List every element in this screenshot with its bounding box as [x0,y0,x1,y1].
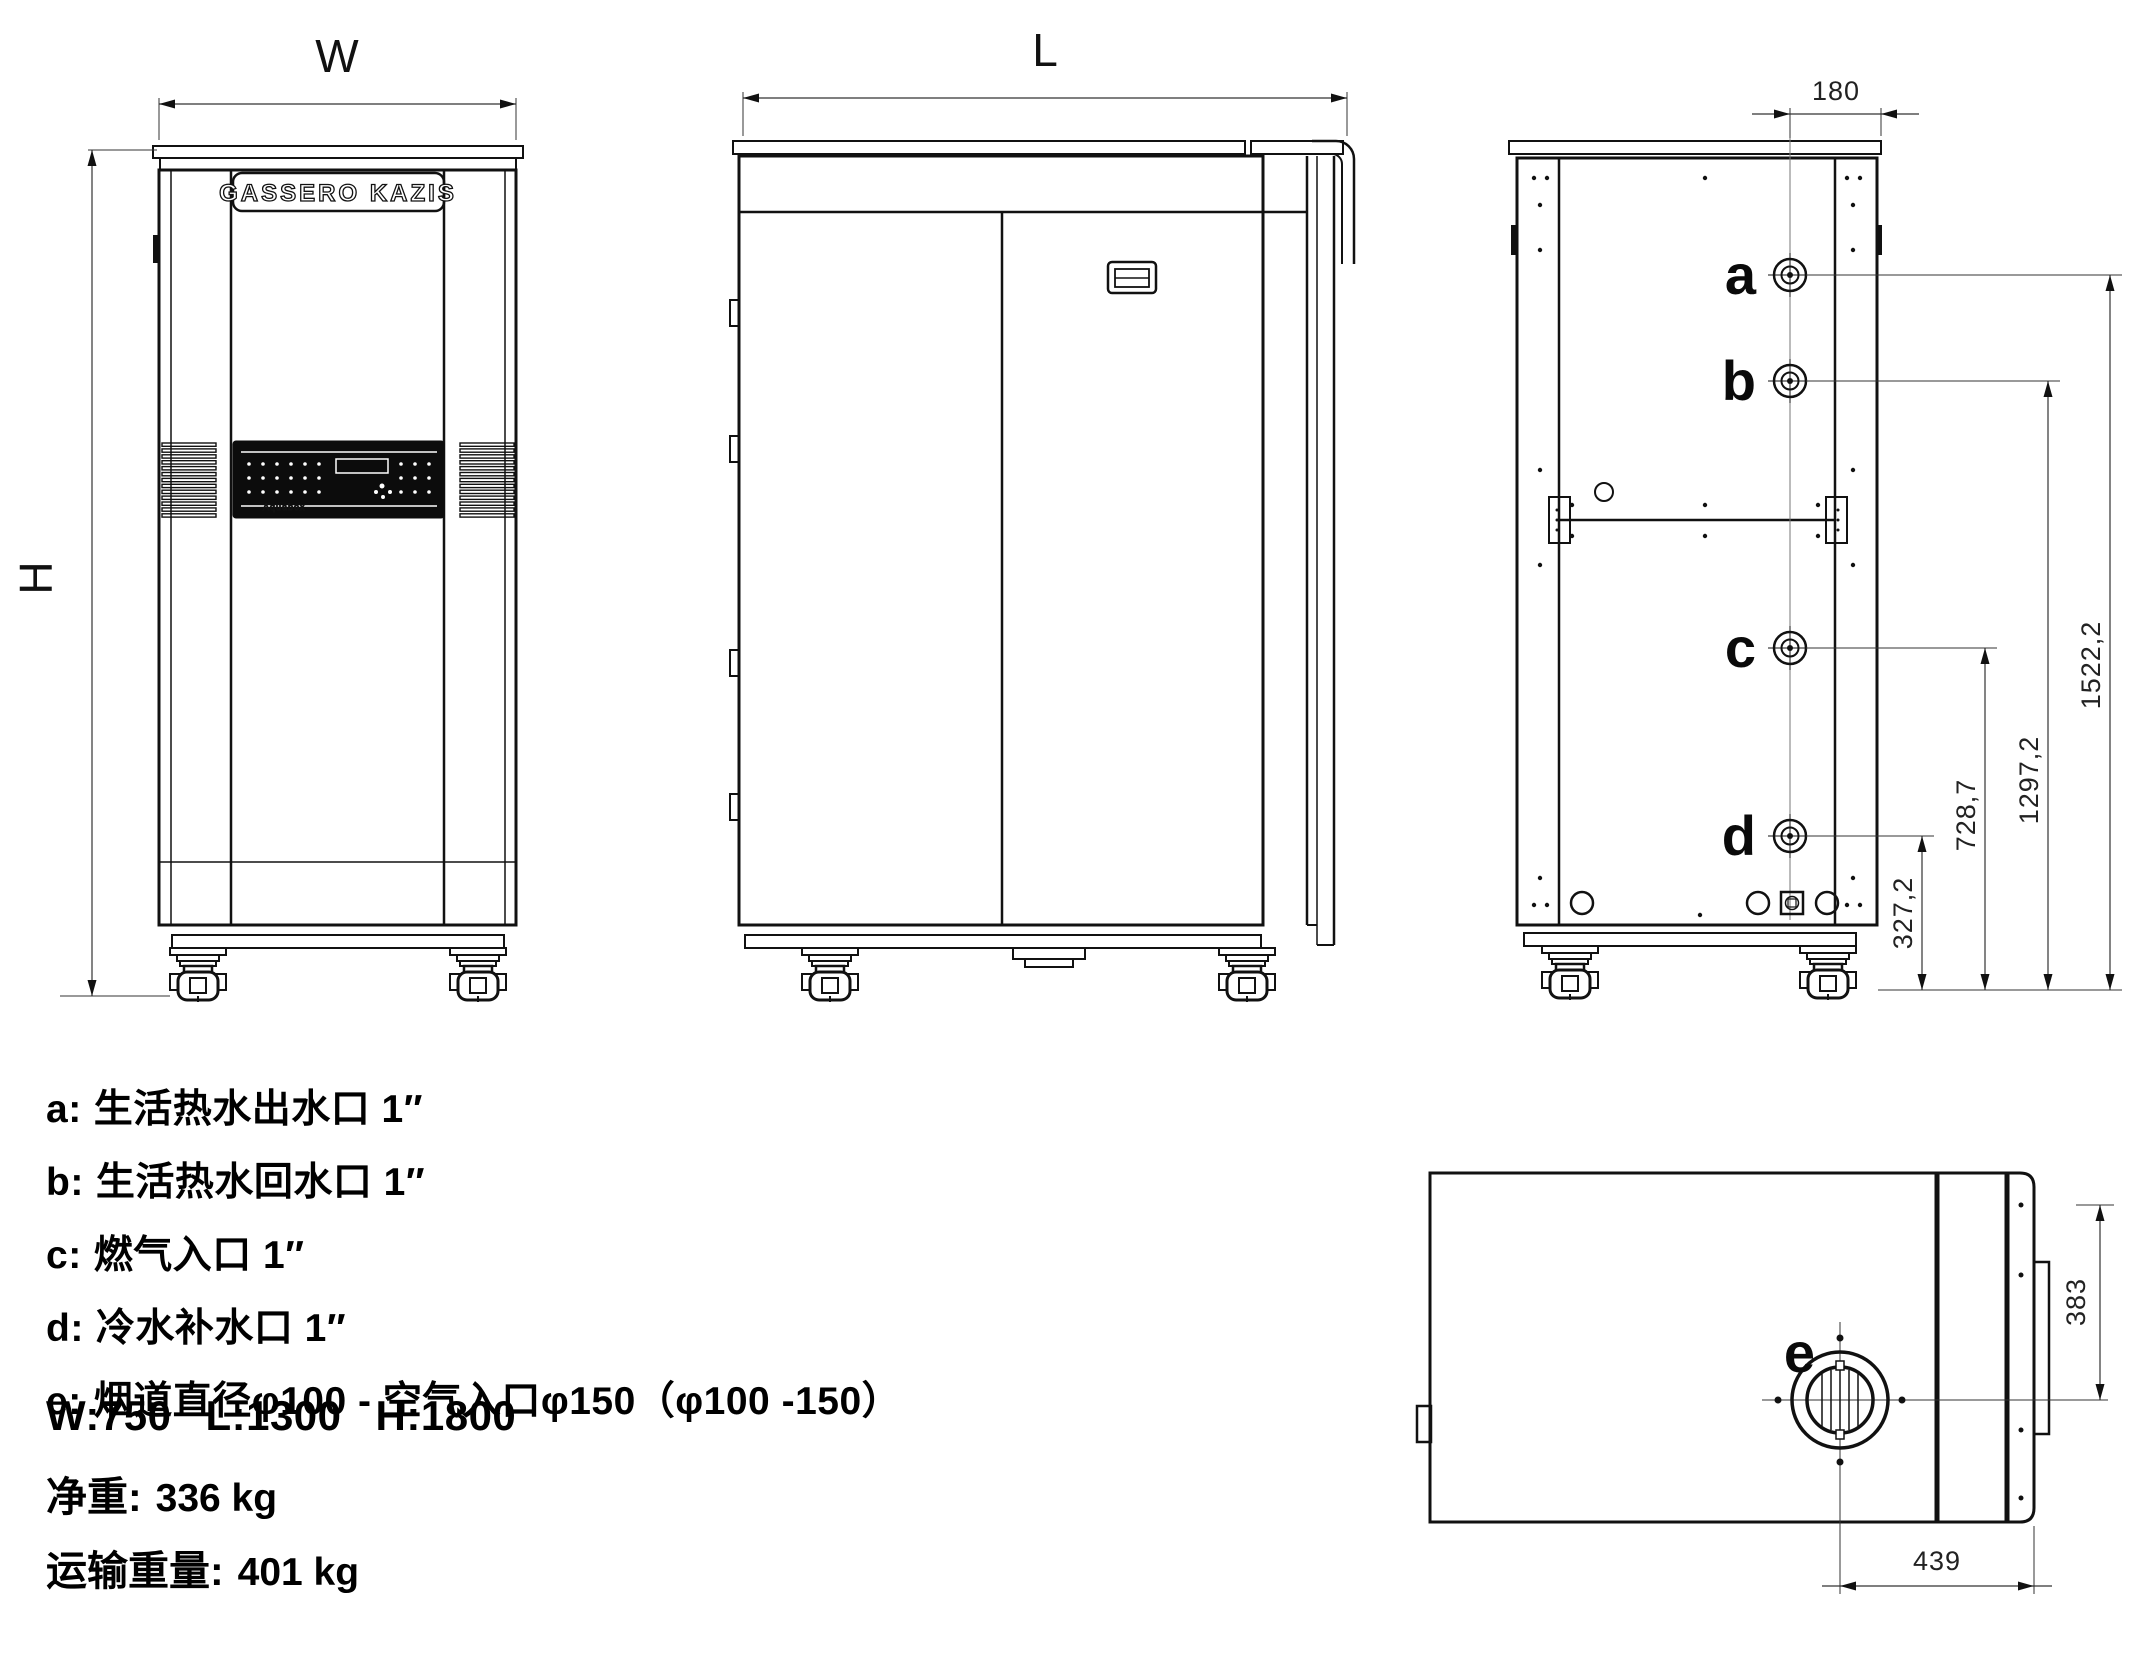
port-e-label: e [1784,1321,1815,1384]
control-panel: Aquabox [233,441,444,518]
vent-grille-left [162,443,216,517]
door-handle [1108,262,1156,293]
width-dim-label: W [315,30,359,82]
legend-text: 生活热水回水口 1″ [96,1161,425,1204]
legend-item-a: a:生活热水出水口 1″ [46,1078,901,1134]
side-view [730,141,1354,1002]
brand-text: GASSERO KAZIS [219,180,457,207]
legend-key: c: [46,1234,82,1277]
shipping-weight-label: 运输重量: [46,1548,224,1594]
panel-hole [1595,483,1613,501]
base-plate [1524,933,1856,946]
overall-dimensions: W:750L:1300H:1800 [46,1392,550,1440]
caster-wheel [170,948,226,1002]
vent-grille-right [460,443,514,517]
front-view: GASSERO KAZIS Aquabox [153,146,523,1002]
legend-item-d: d:冷水补水口 1″ [46,1297,901,1353]
caster-wheel [1800,946,1856,1000]
bottom-fittings [1571,892,1838,914]
base-bracket-step [1025,959,1073,967]
legend-key: d: [46,1307,84,1350]
legend-key: b: [46,1161,84,1204]
base-bracket [1013,948,1085,959]
net-weight-line: 净重:336 kg [46,1463,277,1523]
legend: a:生活热水出水口 1″ b:生活热水回水口 1″ c:燃气入口 1″ d:冷水… [46,1078,901,1443]
base-plate [172,935,504,948]
legend-text: 燃气入口 1″ [94,1234,305,1277]
rear-offset-dim: 180 [1812,76,1860,106]
length-dim-label: L [1032,24,1058,76]
side-latch-tab [153,235,159,263]
port-b-label: b [1722,349,1756,412]
screws [2019,1203,2024,1501]
caster-wheel [1219,948,1275,1002]
port-c [1768,626,1812,670]
port-b [1768,359,1812,403]
rear-mount-plate [2034,1262,2049,1434]
side-dimensions [743,92,1347,136]
dim-1297: 1297,2 [2014,736,2044,825]
legend-key: a: [46,1088,82,1131]
legend-text: 冷水补水口 1″ [96,1307,346,1350]
port-d [1768,814,1812,858]
height-dim-label: H [10,561,62,594]
port-a [1768,253,1812,297]
dim-728: 728,7 [1951,779,1981,852]
rear-dimensions [1752,108,2122,990]
net-weight-label: 净重: [46,1474,142,1520]
panel-brand-text: Aquabox [263,502,306,512]
dim-383: 383 [2061,1278,2091,1326]
base-plate [745,935,1261,948]
dim-439: 439 [1913,1546,1961,1576]
caster-wheel [802,948,858,1002]
port-a-label: a [1725,243,1757,306]
dim-327: 327,2 [1888,877,1918,950]
legend-item-c: c:燃气入口 1″ [46,1224,901,1280]
legend-item-b: b:生活热水回水口 1″ [46,1151,901,1207]
top-view [1417,1173,2108,1522]
shipping-weight-value: 401 kg [238,1551,359,1594]
port-c-label: c [1725,616,1756,679]
dim-h: H:1800 [376,1392,517,1439]
technical-drawing-page: GASSERO KAZIS Aquabox [0,0,2131,1654]
dim-w: W:750 [46,1392,171,1439]
caster-wheel [450,948,506,1002]
port-d-label: d [1722,804,1756,867]
screws [1532,176,1862,917]
dim-1522: 1522,2 [2076,621,2106,710]
shipping-weight-line: 运输重量:401 kg [46,1537,359,1597]
net-weight-value: 336 kg [156,1477,277,1520]
dim-l: L:1300 [205,1392,341,1439]
legend-text: 生活热水出水口 1″ [94,1088,423,1131]
caster-wheel [1542,946,1598,1000]
rear-view [1509,112,1882,1000]
